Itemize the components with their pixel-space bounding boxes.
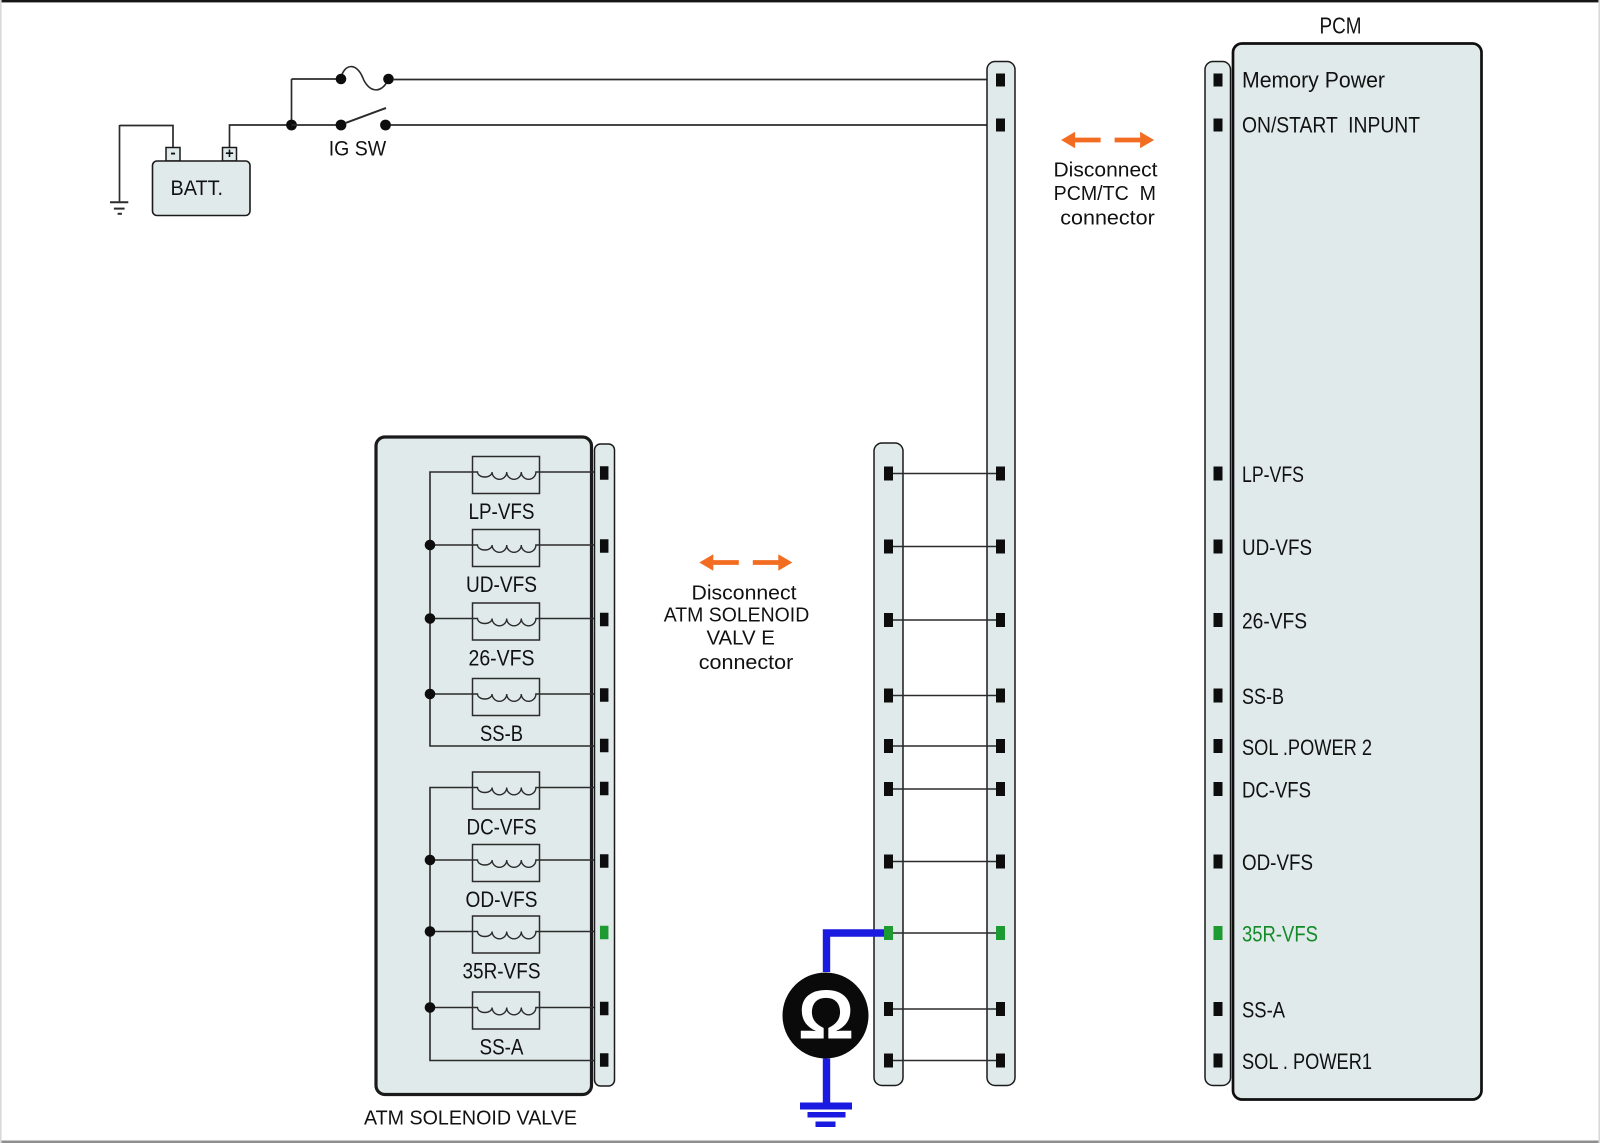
svg-text:-: - bbox=[170, 145, 175, 162]
svg-text:UD-VFS: UD-VFS bbox=[1242, 535, 1312, 560]
svg-text:connector: connector bbox=[699, 651, 794, 674]
svg-text:SS-B: SS-B bbox=[1242, 684, 1284, 709]
svg-text:SS-B: SS-B bbox=[480, 721, 523, 746]
svg-text:ON/START INPUNT: ON/START INPUNT bbox=[1242, 113, 1420, 138]
svg-text:SOL . POWER1: SOL . POWER1 bbox=[1242, 1049, 1372, 1074]
svg-text:SOL .POWER 2: SOL .POWER 2 bbox=[1242, 735, 1372, 760]
svg-text:connector: connector bbox=[1060, 206, 1155, 229]
svg-text:Disconnect: Disconnect bbox=[1054, 159, 1158, 182]
svg-text:LP-VFS: LP-VFS bbox=[1242, 462, 1304, 487]
svg-text:35R-VFS: 35R-VFS bbox=[463, 959, 541, 984]
svg-text:DC-VFS: DC-VFS bbox=[1242, 778, 1311, 803]
svg-text:SS-A: SS-A bbox=[480, 1035, 524, 1060]
svg-text:Disconnect: Disconnect bbox=[692, 582, 797, 605]
svg-text:OD-VFS: OD-VFS bbox=[1242, 850, 1313, 875]
svg-text:VALV E: VALV E bbox=[706, 626, 775, 649]
svg-text:PCM: PCM bbox=[1320, 13, 1362, 39]
svg-text:ATM SOLENOID: ATM SOLENOID bbox=[664, 604, 810, 627]
svg-text:OD-VFS: OD-VFS bbox=[466, 887, 538, 912]
svg-text:Memory Power: Memory Power bbox=[1242, 68, 1385, 93]
svg-text:Ω: Ω bbox=[798, 976, 854, 1054]
svg-text:+: + bbox=[225, 146, 233, 162]
svg-text:LP-VFS: LP-VFS bbox=[469, 499, 535, 524]
svg-text:DC-VFS: DC-VFS bbox=[467, 815, 537, 840]
svg-text:PCM/TC M: PCM/TC M bbox=[1054, 182, 1156, 205]
svg-text:IG SW: IG SW bbox=[329, 138, 387, 161]
svg-text:UD-VFS: UD-VFS bbox=[466, 572, 537, 597]
svg-text:BATT.: BATT. bbox=[171, 177, 224, 200]
svg-text:26-VFS: 26-VFS bbox=[1242, 609, 1307, 634]
svg-text:35R-VFS: 35R-VFS bbox=[1242, 922, 1318, 947]
svg-text:ATM SOLENOID VALVE: ATM SOLENOID VALVE bbox=[364, 1107, 577, 1130]
svg-text:SS-A: SS-A bbox=[1242, 998, 1285, 1023]
svg-text:26-VFS: 26-VFS bbox=[469, 646, 535, 671]
